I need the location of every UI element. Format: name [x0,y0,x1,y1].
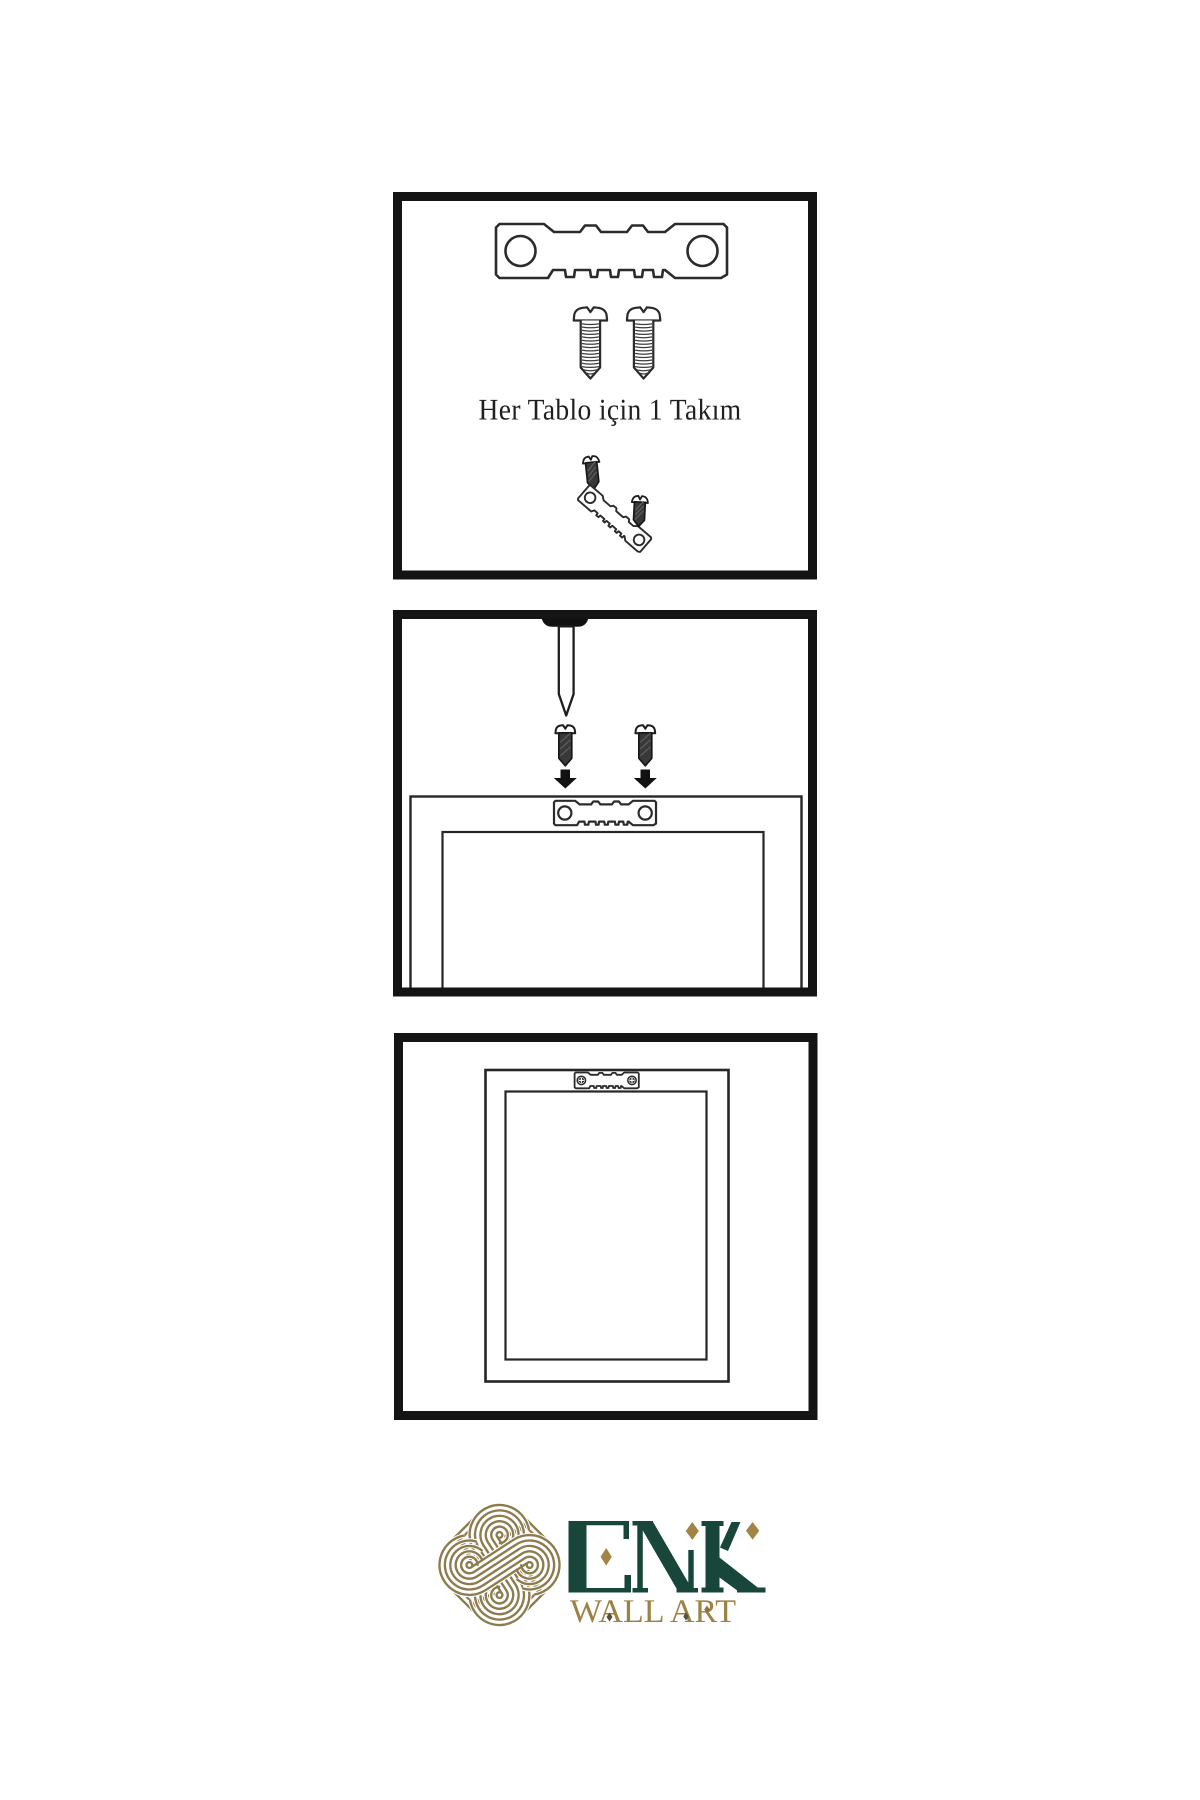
svg-text:Her Tablo için 1 Takım: Her Tablo için 1 Takım [479,394,742,427]
svg-text:WALL ART: WALL ART [570,1594,736,1630]
